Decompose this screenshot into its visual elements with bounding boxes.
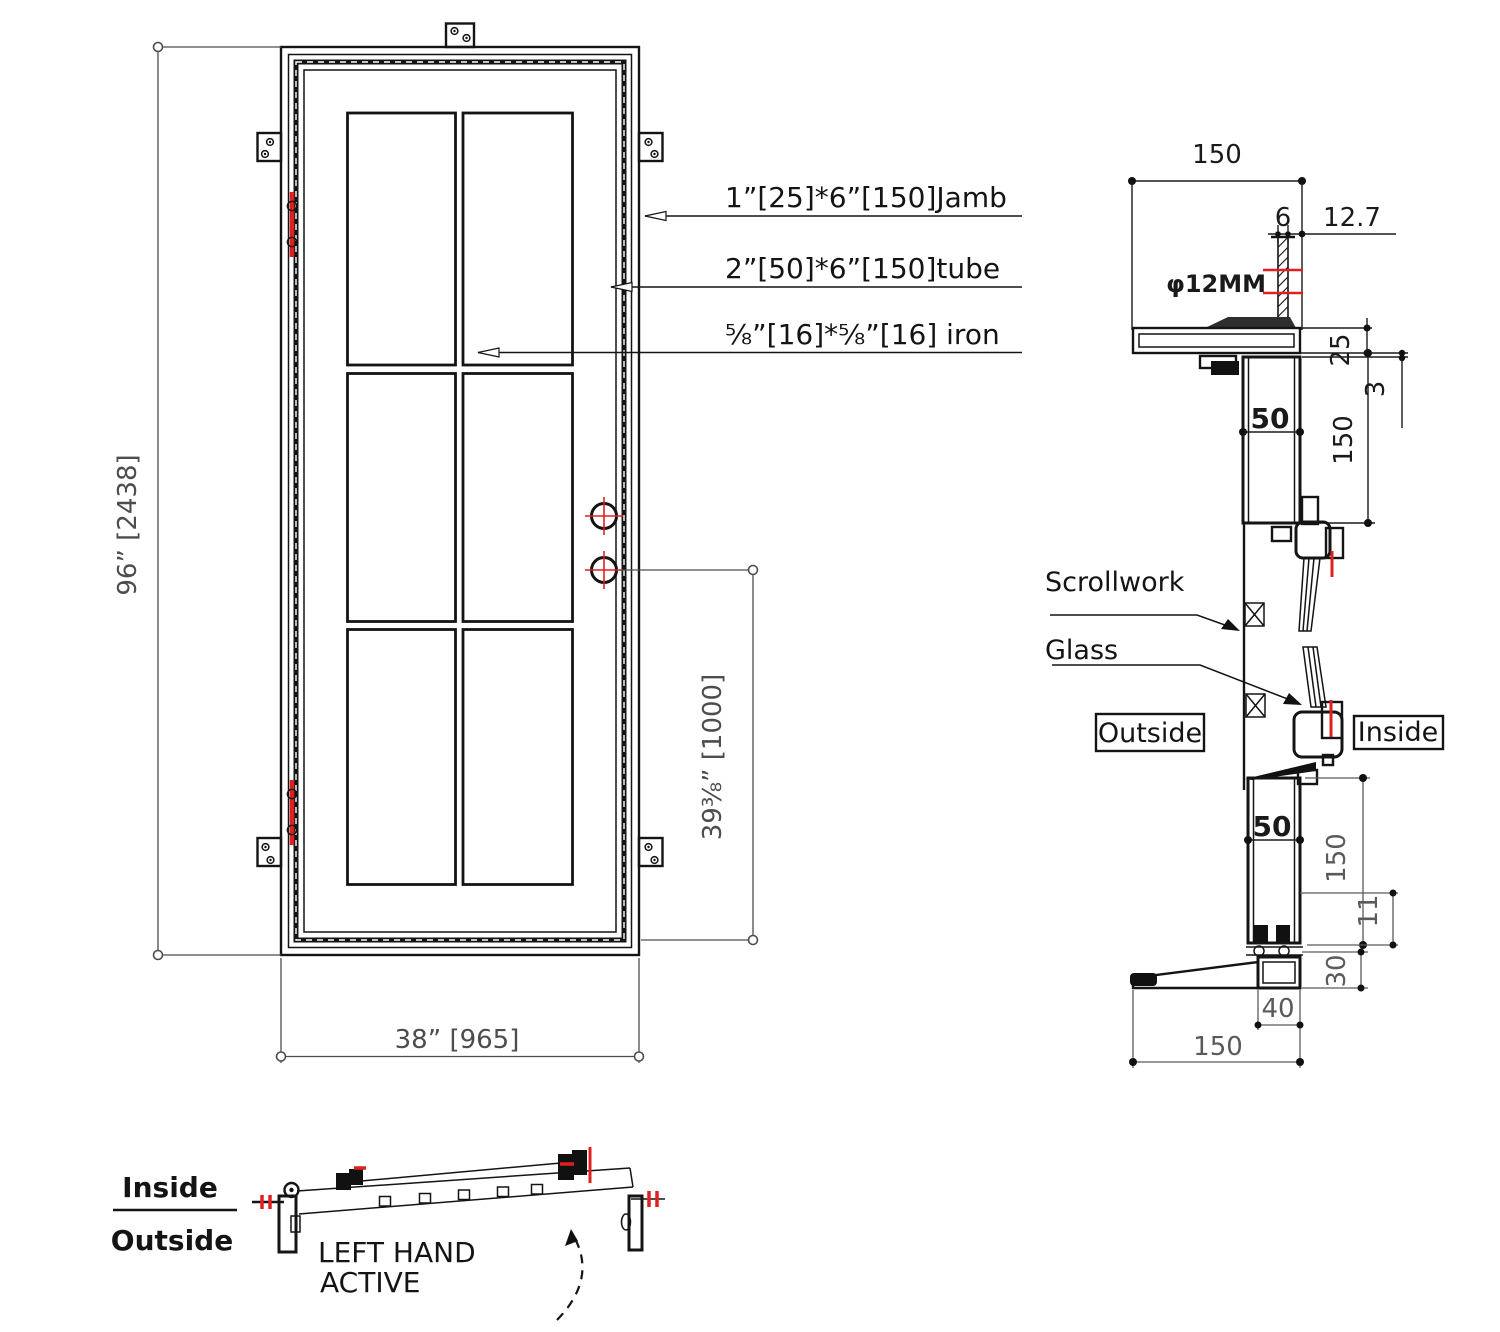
glazing-clip: [380, 1197, 391, 1207]
door-sweep: [1246, 946, 1303, 956]
bottom-tube: 50: [1244, 778, 1304, 943]
jamb-thickness-label: 25: [1326, 333, 1356, 366]
scrollwork-symbol: [1246, 694, 1265, 717]
glass-pane: [348, 113, 456, 365]
dim-threshold-height: 30: [1302, 949, 1368, 992]
callout-jamb-label: 1”[25]*6”[150]Jamb: [725, 181, 1007, 214]
glazing-clip: [420, 1194, 431, 1204]
handing-line2: ACTIVE: [320, 1266, 420, 1299]
door-elevation: 96” [2438] 38” [965] 39⅜” [1000] 1”[25]*…: [113, 24, 1022, 1064]
label-outside-box: Outside: [1096, 714, 1204, 751]
plan-inside-text: Inside: [122, 1171, 218, 1204]
plan-outside-text: Outside: [111, 1224, 233, 1257]
callout-jamb: 1”[25]*6”[150]Jamb: [645, 181, 1022, 221]
bottom-depth-label: 150: [1322, 833, 1352, 883]
inside-text: Inside: [1358, 717, 1438, 748]
handle-height-label: 39⅜” [1000]: [698, 674, 728, 840]
jamb-section: 150 6 12.7 φ12MM: [1045, 140, 1443, 1068]
bracket-right-upper: [639, 133, 663, 161]
callout-iron-label: ⅝”[16]*⅝”[16] iron: [725, 318, 1000, 351]
swing-arc: [557, 1229, 582, 1320]
bracket-right-lower: [639, 838, 663, 866]
inside-outside-key: Inside Outside: [111, 1171, 237, 1257]
dim-door-height: 96” [2438]: [113, 43, 281, 960]
jamb-width-label: 150: [1192, 140, 1242, 170]
head-jamb-plate: [1133, 328, 1300, 375]
threshold-width-label: 40: [1261, 994, 1294, 1024]
glass-text: Glass: [1045, 635, 1118, 666]
plan-door-slab: [336, 1147, 590, 1190]
handle-hole: [585, 551, 623, 589]
scrollwork-plane: [1244, 523, 1265, 790]
door-frame: [281, 47, 639, 955]
head-gap-label: 3: [1361, 381, 1391, 398]
weld-bead: [1205, 317, 1296, 328]
bottom-tube-label: 50: [1253, 810, 1292, 843]
mounting-brackets: [258, 24, 663, 867]
sweep-label: 11: [1354, 894, 1384, 927]
head-tube: 50: [1239, 357, 1304, 523]
head-depth-label: 150: [1329, 415, 1359, 465]
glazing-clip: [498, 1187, 509, 1197]
drawing-svg: 96” [2438] 38” [965] 39⅜” [1000] 1”[25]*…: [0, 0, 1500, 1332]
head-glazing: [1272, 497, 1343, 631]
dim-head-depth: 150: [1302, 349, 1375, 527]
glass-pane: [463, 374, 573, 622]
glass-pane: [348, 374, 456, 622]
dim-threshold-width: 40: [1255, 990, 1304, 1068]
door-width-label: 38” [965]: [395, 1025, 520, 1055]
dim-door-width: 38” [965]: [277, 958, 644, 1063]
door-height-label: 96” [2438]: [113, 454, 143, 595]
glass-pane: [463, 113, 573, 365]
sill-glazing: [1245, 647, 1342, 784]
label-inside-box: Inside: [1354, 716, 1443, 749]
anchor-width-label: 6: [1275, 203, 1292, 233]
plan-hinge-jamb: [252, 1183, 300, 1252]
callout-tube: 2”[50]*6”[150]tube: [611, 252, 1022, 292]
handing-line1: LEFT HAND: [318, 1236, 476, 1269]
dim-handle-height: 39⅜” [1000]: [620, 566, 758, 945]
scrollwork-symbol: [1245, 603, 1264, 626]
deadbolt-hole: [585, 497, 623, 535]
plan-strike-jamb: [622, 1191, 666, 1250]
scrollwork-text: Scrollwork: [1045, 567, 1185, 598]
glazing-clip: [532, 1185, 543, 1195]
dim-jamb-thickness: 25: [1300, 318, 1408, 367]
outside-text: Outside: [1098, 718, 1202, 749]
threshold: [1130, 957, 1300, 988]
threshold-height-label: 30: [1322, 954, 1352, 987]
bracket-top: [446, 24, 474, 48]
sill-depth-label: 150: [1193, 1032, 1243, 1062]
anchor-offset-label: 12.7: [1323, 203, 1381, 233]
callout-tube-label: 2”[50]*6”[150]tube: [725, 252, 1000, 285]
door-shop-drawing: 96” [2438] 38” [965] 39⅜” [1000] 1”[25]*…: [0, 0, 1500, 1332]
glazing-clip: [459, 1190, 470, 1200]
glass-grid: [348, 113, 573, 885]
bracket-left-upper: [258, 133, 282, 161]
glass-pane: [463, 630, 573, 885]
glass-pane: [348, 630, 456, 885]
door-leaf-edge: [296, 62, 624, 940]
head-tube-label: 50: [1251, 402, 1290, 435]
dim-sweep: 11: [1300, 890, 1398, 949]
glass-upper: [1299, 558, 1320, 631]
label-scrollwork: Scrollwork: [1045, 567, 1240, 631]
handing-plan: Inside Outside: [111, 1147, 665, 1320]
bracket-left-lower: [258, 838, 282, 866]
anchor-dia-label: φ12MM: [1166, 270, 1266, 298]
handing-label: LEFT HAND ACTIVE: [318, 1236, 476, 1299]
callout-iron: ⅝”[16]*⅝”[16] iron: [478, 318, 1022, 357]
